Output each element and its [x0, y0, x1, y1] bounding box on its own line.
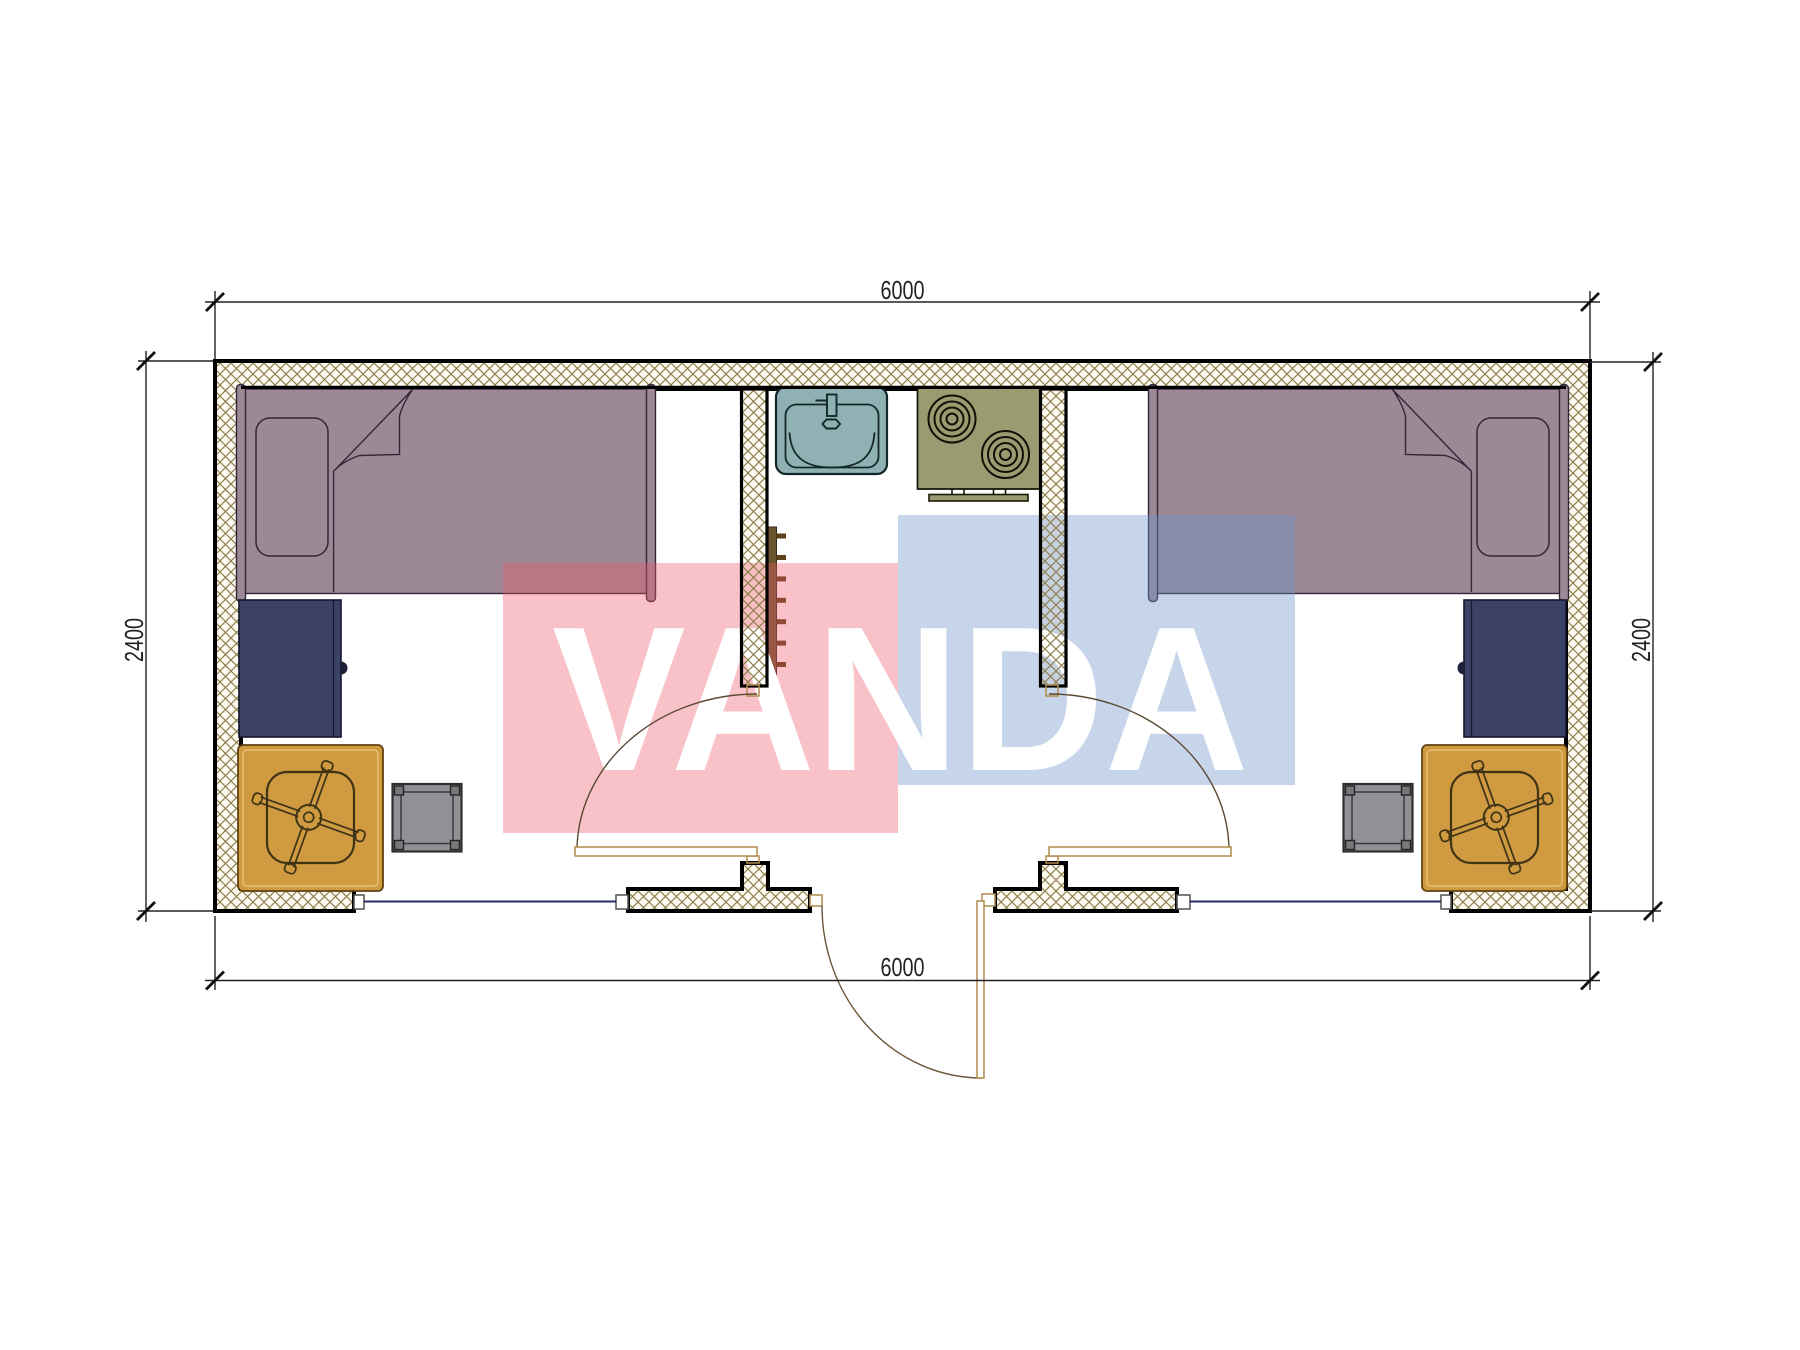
svg-text:6000: 6000	[881, 275, 925, 305]
svg-text:VANDA: VANDA	[552, 584, 1249, 814]
svg-text:2400: 2400	[119, 618, 149, 662]
svg-text:6000: 6000	[881, 952, 925, 982]
svg-text:2400: 2400	[1626, 618, 1656, 662]
